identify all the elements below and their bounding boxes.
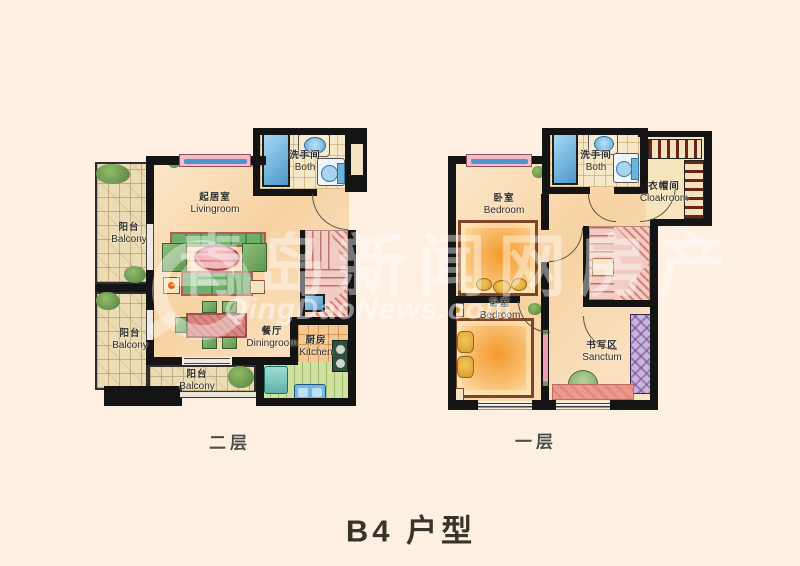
room-label-sanctum: 书写区 Sanctum xyxy=(582,341,621,363)
toilet-tank xyxy=(631,158,639,180)
room-label-en: Bedroom xyxy=(484,205,525,216)
floor-caption-second: 二层 xyxy=(209,429,251,454)
plant-icon xyxy=(96,292,120,310)
room-label-en: Cloakroom xyxy=(640,193,688,204)
room-label-balcony-bottom: 阳台 Balcony xyxy=(179,370,215,392)
wall-segment xyxy=(640,128,648,188)
wall-segment xyxy=(542,128,648,135)
burner xyxy=(336,359,345,368)
shower-icon xyxy=(262,132,290,187)
wall-segment xyxy=(610,400,658,410)
shower-icon xyxy=(552,133,578,185)
stair-landing xyxy=(592,258,614,276)
armchair xyxy=(162,243,187,272)
room-label-en: Livingroom xyxy=(191,204,240,215)
wall-segment xyxy=(542,128,550,194)
wall-segment xyxy=(541,194,549,230)
floorplan-image: 起居室 Livingroom 阳台 Balcony 阳台 Balcony 阳台 … xyxy=(0,0,800,566)
wall-segment xyxy=(253,128,260,196)
plant-icon xyxy=(124,266,146,283)
pillow xyxy=(457,331,474,353)
coffee-table xyxy=(194,245,240,271)
dining-chair xyxy=(175,317,187,333)
side-table xyxy=(163,277,180,294)
room-label-en: Balcony xyxy=(112,340,148,351)
armchair xyxy=(242,243,267,272)
washing-machine-icon xyxy=(264,366,288,394)
wall-segment xyxy=(542,187,590,194)
burner xyxy=(336,345,345,354)
dining-chair xyxy=(202,301,217,313)
room-label-cn: 阳台 xyxy=(111,223,147,234)
rug xyxy=(552,384,634,400)
pillow xyxy=(511,278,527,291)
bookcase xyxy=(630,314,652,394)
room-label-cn: 洗手间 xyxy=(580,151,612,162)
balcony-door-opening xyxy=(146,224,154,270)
room-label-en: Balcony xyxy=(111,234,147,245)
pillow xyxy=(476,278,492,291)
room-label-bedroom-lower: 卧室 Bedroom xyxy=(480,299,521,321)
wall-segment xyxy=(583,226,589,307)
room-label-cn: 起居室 xyxy=(191,193,240,204)
room-label-en: Both xyxy=(289,162,321,173)
room-label-diningroom: 餐厅 Diningroom xyxy=(246,327,297,349)
basin-icon xyxy=(303,294,325,312)
balcony-door-opening xyxy=(184,358,230,364)
wall-segment xyxy=(704,131,712,226)
sink-bowl xyxy=(312,388,322,397)
wall-segment xyxy=(253,189,317,196)
window-glass xyxy=(184,159,247,164)
room-label-bath: 洗手间 Both xyxy=(289,151,321,173)
wall-segment xyxy=(583,300,658,307)
side-table xyxy=(250,280,265,294)
room-label-cn: 厨房 xyxy=(299,336,332,347)
room-label-en: Balcony xyxy=(179,381,215,392)
sofa xyxy=(181,271,253,296)
window-glass xyxy=(471,159,528,164)
wall-segment xyxy=(104,386,182,406)
pillow xyxy=(457,356,474,378)
room-label-cloakroom: 衣帽间 Cloakroom xyxy=(640,182,688,204)
window xyxy=(466,154,532,167)
toilet-icon xyxy=(613,153,639,183)
wall-segment xyxy=(638,131,712,137)
room-label-en: Sanctum xyxy=(582,352,621,363)
wall-segment xyxy=(448,400,478,410)
room-label-cn: 阳台 xyxy=(179,370,215,381)
room-label-livingroom: 起居室 Livingroom xyxy=(191,193,240,215)
plant-icon xyxy=(228,366,254,388)
wall-segment xyxy=(654,219,712,226)
room-label-cn: 卧室 xyxy=(484,194,525,205)
decor-dot xyxy=(168,282,175,289)
room-label-kitchen: 厨房 Kitchen xyxy=(299,336,332,358)
window-planter-strip xyxy=(543,330,548,386)
room-label-en: Bedroom xyxy=(480,310,521,321)
dining-chair xyxy=(222,337,237,349)
dining-table xyxy=(186,313,247,338)
wall-segment xyxy=(95,284,148,292)
wall-segment xyxy=(300,230,305,322)
room-label-bath: 洗手间 Both xyxy=(580,151,612,173)
pillow xyxy=(493,280,511,294)
dining-chair xyxy=(222,301,237,313)
room-label-cn: 书写区 xyxy=(582,341,621,352)
room-label-en: Kitchen xyxy=(299,347,332,358)
room-label-cn: 卧室 xyxy=(480,299,521,310)
room-label-cn: 衣帽间 xyxy=(640,182,688,193)
wall-segment xyxy=(253,128,357,135)
toilet-bowl xyxy=(321,165,338,182)
window xyxy=(478,401,532,410)
toilet-icon xyxy=(317,158,345,186)
wardrobe-rack xyxy=(648,139,702,159)
room-label-balcony-upper: 阳台 Balcony xyxy=(111,223,147,245)
wall-segment xyxy=(146,357,182,365)
wall-segment xyxy=(532,400,556,410)
room-label-cn: 餐厅 xyxy=(246,327,297,338)
wall-segment xyxy=(232,357,298,365)
room-label-en: Both xyxy=(580,162,612,173)
wall-segment xyxy=(448,156,456,407)
wall-segment xyxy=(258,398,356,406)
page-title: B4 户型 xyxy=(346,506,476,551)
room-label-balcony-lower: 阳台 Balcony xyxy=(112,329,148,351)
window xyxy=(556,401,610,410)
plant-icon xyxy=(96,164,130,184)
duct-slot xyxy=(351,144,363,175)
toilet-tank xyxy=(337,163,345,184)
dining-chair xyxy=(202,337,217,349)
room-label-cn: 洗手间 xyxy=(289,151,321,162)
sink-bowl xyxy=(298,388,308,397)
room-label-en: Diningroom xyxy=(246,338,297,349)
stair-steps xyxy=(304,269,347,287)
toilet-bowl xyxy=(616,161,632,177)
stove-icon xyxy=(332,340,348,372)
floor-caption-first: 一层 xyxy=(515,428,557,453)
wall-segment xyxy=(650,219,658,407)
window xyxy=(179,154,251,167)
room-label-bedroom-upper: 卧室 Bedroom xyxy=(484,194,525,216)
stair-steps xyxy=(304,231,330,269)
room-label-cn: 阳台 xyxy=(112,329,148,340)
